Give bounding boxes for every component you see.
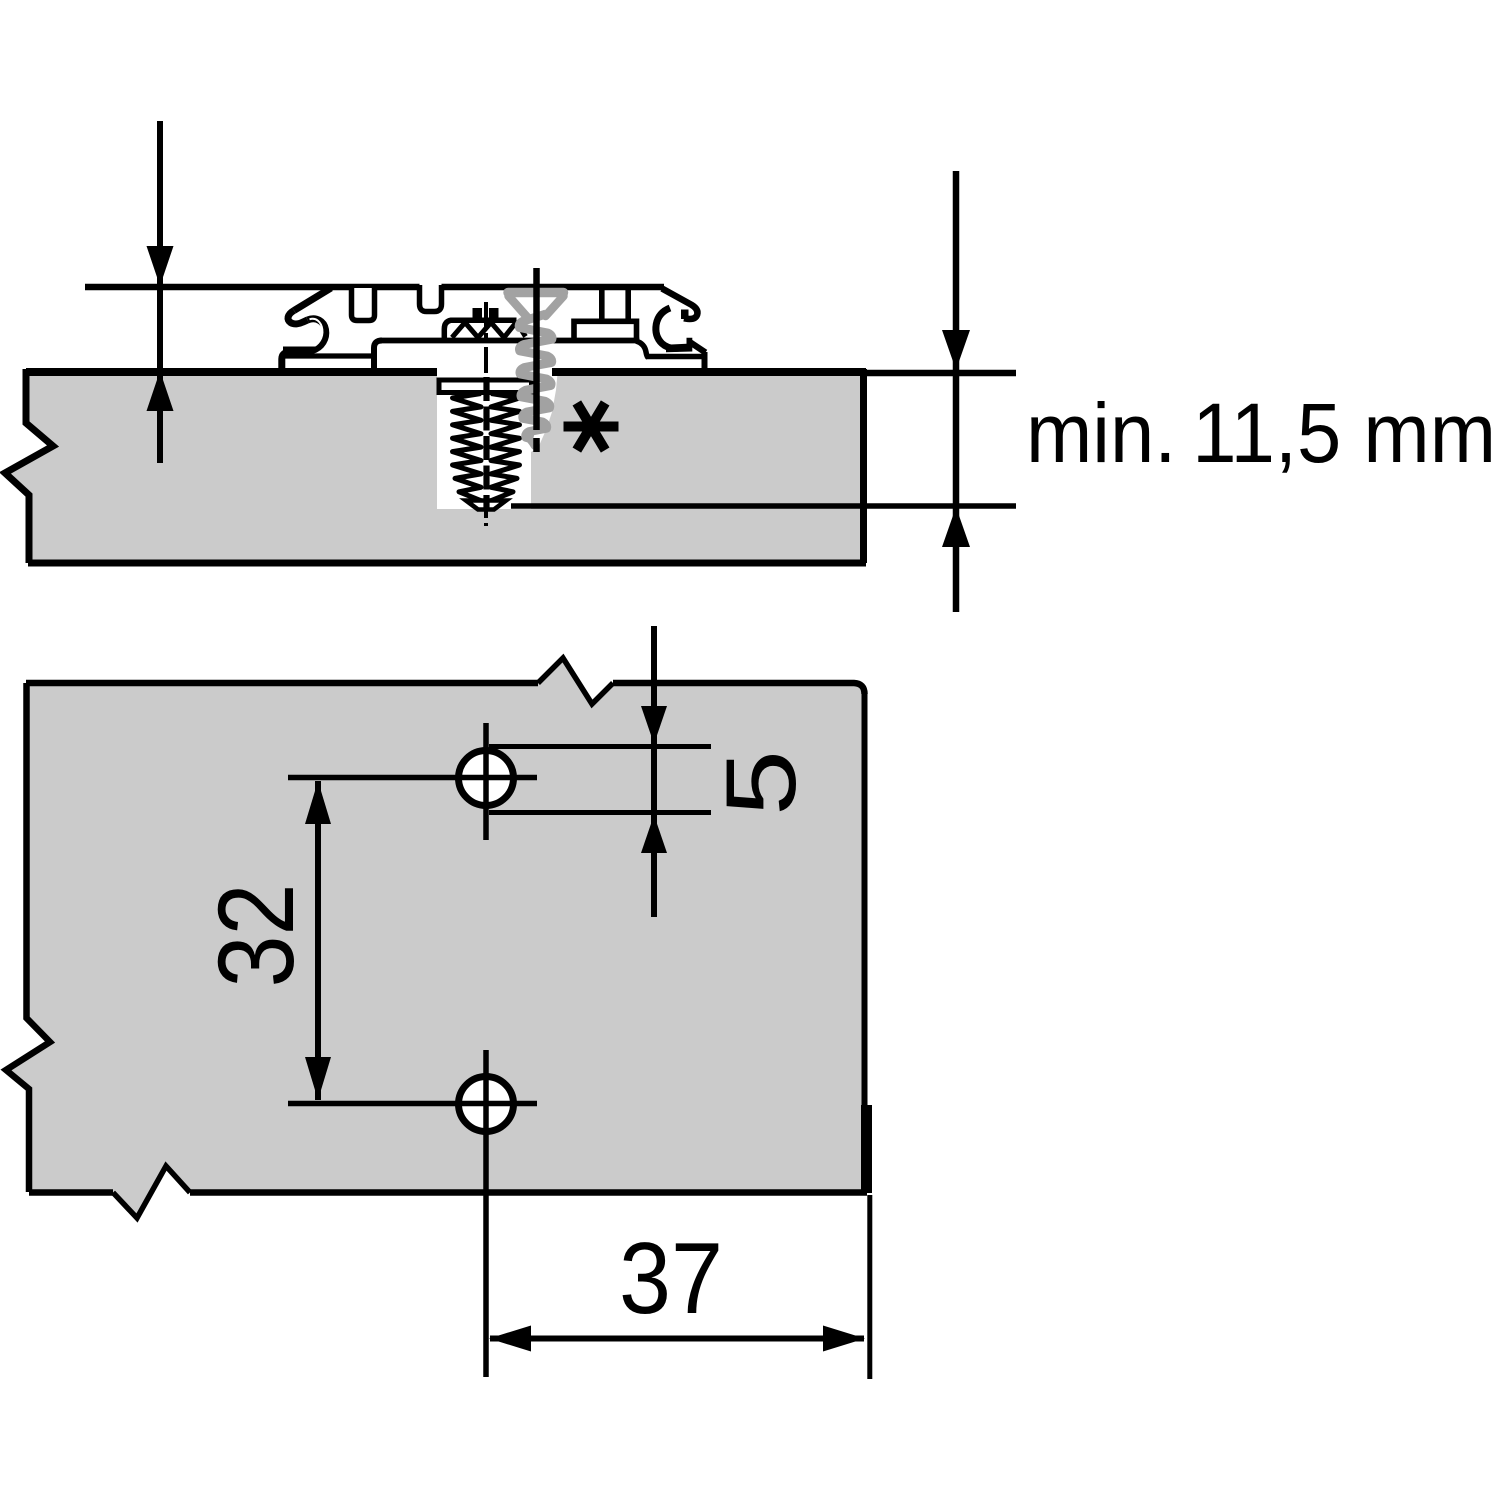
svg-text:37: 37: [619, 1223, 723, 1335]
svg-text:min. 11,5 mm: min. 11,5 mm: [1026, 386, 1496, 480]
svg-text:5: 5: [705, 750, 816, 816]
svg-text:32: 32: [195, 884, 316, 988]
